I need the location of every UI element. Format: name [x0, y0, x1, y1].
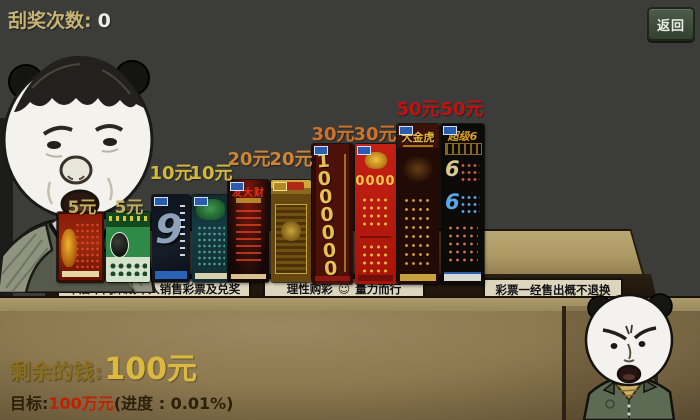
brand-tag [273, 182, 287, 191]
scratch-counter: 刮奖次数:0 [8, 6, 111, 33]
prize-circles [109, 262, 147, 276]
back-button[interactable]: 返回 [647, 7, 695, 41]
ticket-motif-0000: 0000 [355, 174, 396, 189]
gold-banner [236, 198, 261, 203]
side-dots [180, 205, 185, 261]
lottery-ticket-30yuan-red[interactable]: 0000 [355, 144, 396, 284]
text-rows [236, 210, 261, 262]
ticket-footer [62, 271, 99, 277]
brand-tag [154, 197, 168, 206]
big-digit-6: 6 [445, 157, 460, 181]
scratch-grid [197, 225, 225, 269]
wood-panel-line [562, 306, 566, 420]
goal-progress: 目标:100万元(进度 : 0.01%) [10, 390, 234, 414]
remaining-money-label: 剩余的钱: [10, 356, 102, 386]
price-label-20yuan: 20元 [226, 145, 272, 171]
ticket-footer [358, 275, 393, 281]
ticket-footer [195, 273, 227, 279]
lottery-ticket-10yuan-nine[interactable]: 9 [152, 195, 190, 282]
price-label-50yuan: 50元 [395, 95, 441, 121]
ticket-footer [231, 274, 266, 279]
ticket-footer [400, 274, 436, 281]
goal-progress-text: (进度 : 0.01%) [114, 394, 234, 413]
ticket-footer [444, 272, 481, 281]
gold-underline [403, 145, 432, 147]
price-label-5yuan: 5元 [59, 193, 105, 218]
scratch-grid [403, 196, 433, 266]
tiger-art [403, 156, 433, 182]
symbol-grid [361, 243, 390, 273]
player-panda-character [576, 290, 678, 420]
price-label-50yuan: 50元 [439, 95, 485, 121]
symbol-grid [447, 224, 478, 266]
goal-value: 100万元 [48, 394, 113, 413]
price-label-5yuan: 5元 [106, 193, 152, 218]
scratch-grid [75, 222, 99, 268]
lottery-ticket-20yuan-gold[interactable] [271, 180, 311, 282]
brand-tag [399, 126, 413, 135]
ticket-footer [315, 276, 350, 281]
lottery-ticket-50yuan-dajinhu[interactable]: 大金虎 [397, 124, 439, 284]
gold-medallion [281, 221, 301, 241]
symbol-grid [460, 162, 480, 184]
lottery-ticket-20yuan-fadacai[interactable]: 发大财 [228, 180, 269, 282]
brand-tag [194, 197, 208, 206]
ticket-motif-1000000: 1000000 [312, 149, 340, 280]
brand-tag [314, 146, 328, 155]
lottery-ticket-10yuan-dragon[interactable] [192, 195, 230, 282]
ticket-footer [155, 271, 187, 279]
lottery-ticket-5yuan-green[interactable] [106, 212, 150, 282]
scratch-counter-value: 0 [98, 10, 111, 32]
price-label-30yuan: 30元 [352, 120, 398, 146]
cartoon-character-art [110, 232, 129, 258]
remaining-money: 剩余的钱: 100元 [10, 344, 197, 388]
lottery-ticket-50yuan-chaoji6[interactable]: 超级6 6 6 [441, 124, 484, 284]
gold-pattern-box [445, 143, 481, 155]
lottery-ticket-30yuan-million[interactable]: 1000000 [312, 144, 353, 284]
scratch-counter-label: 刮奖次数: [8, 10, 92, 32]
price-label-20yuan: 20元 [268, 145, 314, 171]
game-screen: 刮奖次数:0 返回 本店不向未成年人销售彩票及兑奖 理性购彩 ☺ 量力而行 彩票… [0, 0, 700, 420]
big-digit-6-blue: 6 [445, 190, 460, 214]
divider [360, 236, 391, 238]
price-label-30yuan: 30元 [310, 120, 356, 146]
brand-tag [357, 146, 371, 155]
gold-line [344, 154, 346, 272]
remaining-money-value: 100元 [104, 344, 197, 388]
ticket-motif-9: 9 [155, 207, 183, 253]
symbol-grid [460, 194, 480, 216]
lottery-ticket-5yuan-red[interactable] [57, 212, 104, 282]
symbol-grid [361, 196, 390, 230]
goal-label: 目标: [10, 394, 48, 413]
brand-tag [443, 126, 457, 135]
